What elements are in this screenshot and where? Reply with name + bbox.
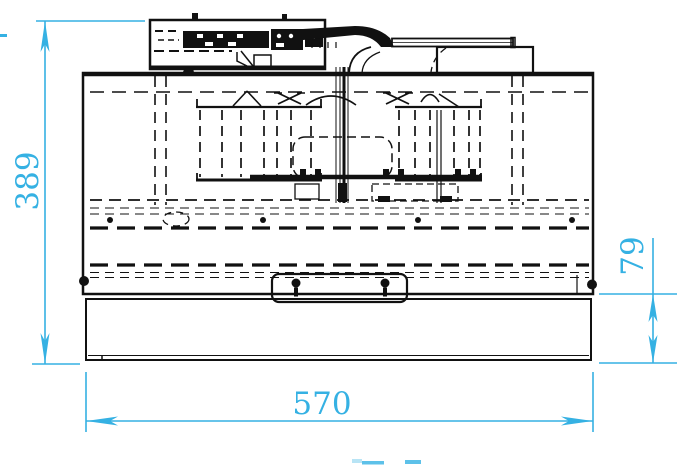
linework [79,13,597,360]
dimension-389-label: 389 [10,151,46,210]
dimension-570: 570 [86,372,593,432]
dimension-79-label: 79 [615,236,651,275]
dimension-570-label: 570 [292,386,351,422]
drawing-sheet: 389 570 79 [0,0,680,465]
rear-plenum [431,47,533,73]
handle [272,274,407,302]
control-box [150,13,325,72]
technical-drawing: 389 570 79 [0,0,680,465]
dimension-79: 79 [599,236,677,363]
plot-artifacts [0,34,421,465]
dimensions: 389 570 79 [0,21,677,465]
front-panel [86,299,591,360]
blower-assembly [196,67,482,203]
